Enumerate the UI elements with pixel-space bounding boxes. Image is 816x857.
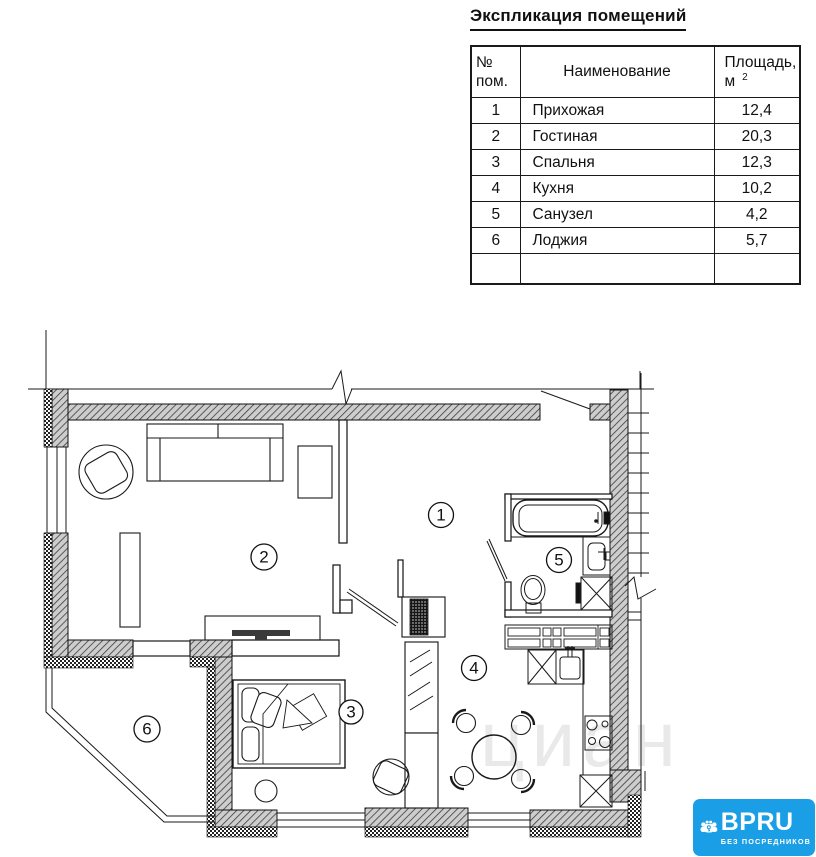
windows bbox=[44, 447, 530, 830]
window-kitchen bbox=[468, 810, 530, 830]
table-row: 5 Санузел 4,2 bbox=[471, 202, 800, 228]
explication-section: Экспликация помещений № пом. Наименовани… bbox=[468, 6, 808, 285]
window-left bbox=[44, 447, 68, 533]
room-label-2: 2 bbox=[251, 544, 277, 570]
table-row: 2 Гостиная 20,3 bbox=[471, 124, 800, 150]
table-row: 3 Спальня 12,3 bbox=[471, 150, 800, 176]
washbasin-icon bbox=[588, 543, 610, 570]
loggia-glazing bbox=[46, 668, 215, 822]
svg-text:5: 5 bbox=[554, 551, 563, 570]
armchair-icon bbox=[79, 445, 133, 499]
room-label-3: 3 bbox=[339, 700, 363, 724]
break-mark-right bbox=[625, 577, 656, 599]
table-row: 1 Прихожая 12,4 bbox=[471, 98, 800, 124]
room-label-4: 4 bbox=[462, 656, 487, 681]
table-row: 4 Кухня 10,2 bbox=[471, 176, 800, 202]
svg-text:2: 2 bbox=[259, 548, 268, 567]
bed-icon bbox=[233, 680, 345, 768]
bedroom-door-leaf bbox=[347, 589, 398, 626]
tv-icon bbox=[232, 630, 290, 636]
bathroom-door-leaf bbox=[487, 539, 507, 581]
table-row: 6 Лоджия 5,7 bbox=[471, 228, 800, 254]
vent-shaft bbox=[410, 599, 428, 635]
room-label-1: 1 bbox=[429, 503, 454, 528]
entrance-door-leaf bbox=[541, 391, 590, 409]
table-row-empty bbox=[471, 254, 800, 284]
sofa-icon bbox=[147, 424, 283, 481]
svg-text:3: 3 bbox=[346, 703, 355, 722]
col-header-area: Площадь, м2 bbox=[714, 46, 800, 98]
bathtub-icon bbox=[513, 500, 610, 536]
watermark-text: циан bbox=[480, 695, 683, 783]
shelf bbox=[120, 533, 140, 627]
loggia-door-unit bbox=[133, 641, 190, 656]
room-label-6: 6 bbox=[134, 716, 160, 742]
tv-desk bbox=[205, 616, 320, 640]
people-key-icon bbox=[699, 808, 719, 848]
bedroom-furniture bbox=[233, 680, 410, 802]
logo-brand: BPRU bbox=[721, 810, 794, 835]
side-table bbox=[298, 446, 332, 498]
logo-tagline: БЕЗ ПОСРЕДНИКОВ bbox=[721, 837, 811, 846]
window-bedroom bbox=[277, 810, 365, 830]
desk-chair-icon bbox=[371, 759, 410, 796]
toilet-icon bbox=[521, 576, 545, 614]
stool-icon bbox=[255, 780, 277, 802]
bathroom-vent-box bbox=[576, 577, 612, 610]
col-header-name: Наименование bbox=[520, 46, 714, 98]
room-label-5: 5 bbox=[547, 548, 572, 573]
bpru-logo: BPRU БЕЗ ПОСРЕДНИКОВ bbox=[693, 799, 815, 856]
floorplan-page: циан bbox=[0, 0, 816, 857]
svg-text:6: 6 bbox=[142, 720, 151, 739]
kitchen-sink-icon bbox=[556, 646, 584, 684]
explication-table: № пом. Наименование Площадь, м2 1 Прихож… bbox=[470, 45, 801, 285]
col-header-number: № пом. bbox=[471, 46, 520, 98]
reference-lines bbox=[28, 330, 654, 409]
closet bbox=[405, 733, 438, 808]
svg-text:4: 4 bbox=[469, 659, 478, 678]
page-title: Экспликация помещений bbox=[470, 6, 686, 31]
livingroom-furniture bbox=[79, 424, 332, 640]
break-mark-top bbox=[332, 371, 352, 404]
svg-text:1: 1 bbox=[436, 506, 445, 525]
